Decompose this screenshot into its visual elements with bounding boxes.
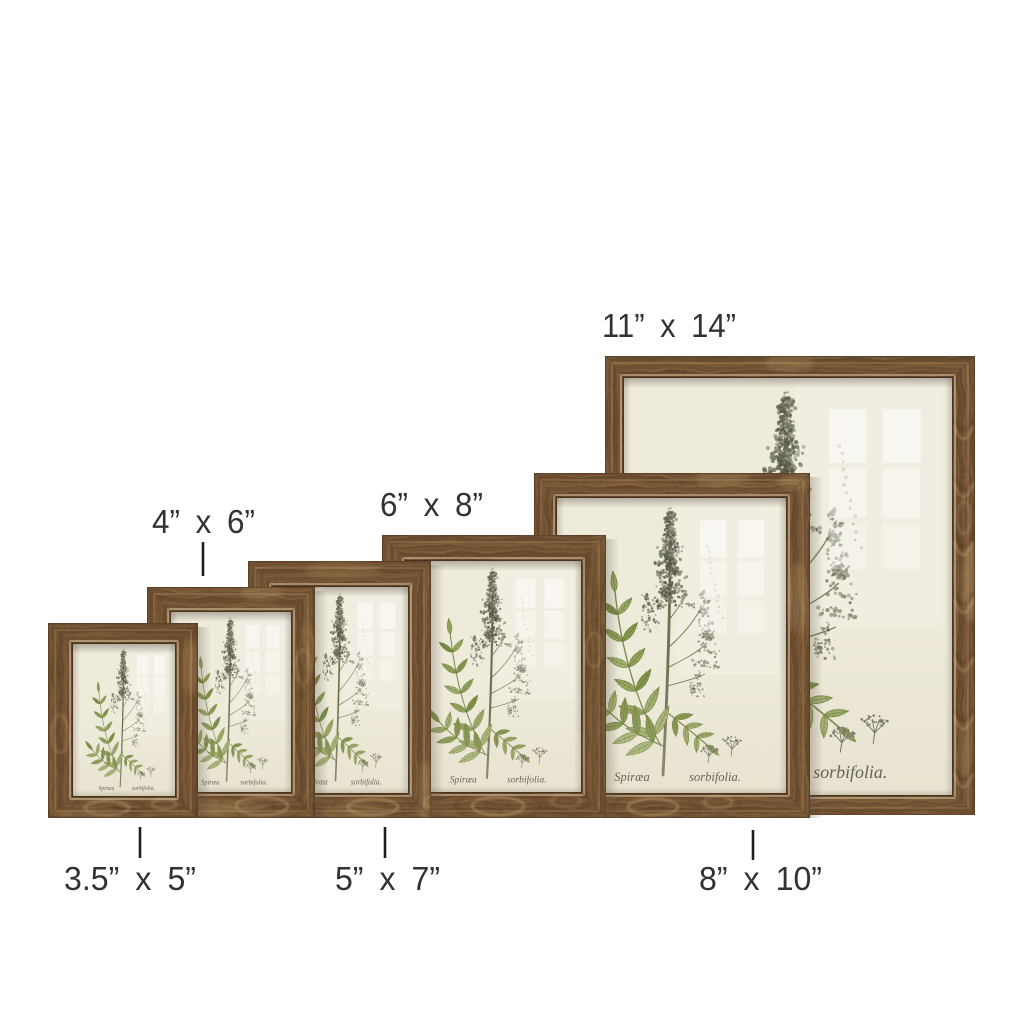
svg-text:5” x 7”: 5” x 7” (335, 860, 440, 897)
svg-text:3.5” x 5”: 3.5” x 5” (64, 860, 196, 897)
svg-text:8” x 10”: 8” x 10” (699, 860, 822, 897)
svg-text:11” x 14”: 11” x 14” (602, 307, 736, 344)
svg-text:6” x 8”: 6” x 8” (380, 486, 483, 523)
svg-text:4” x 6”: 4” x 6” (152, 503, 255, 540)
